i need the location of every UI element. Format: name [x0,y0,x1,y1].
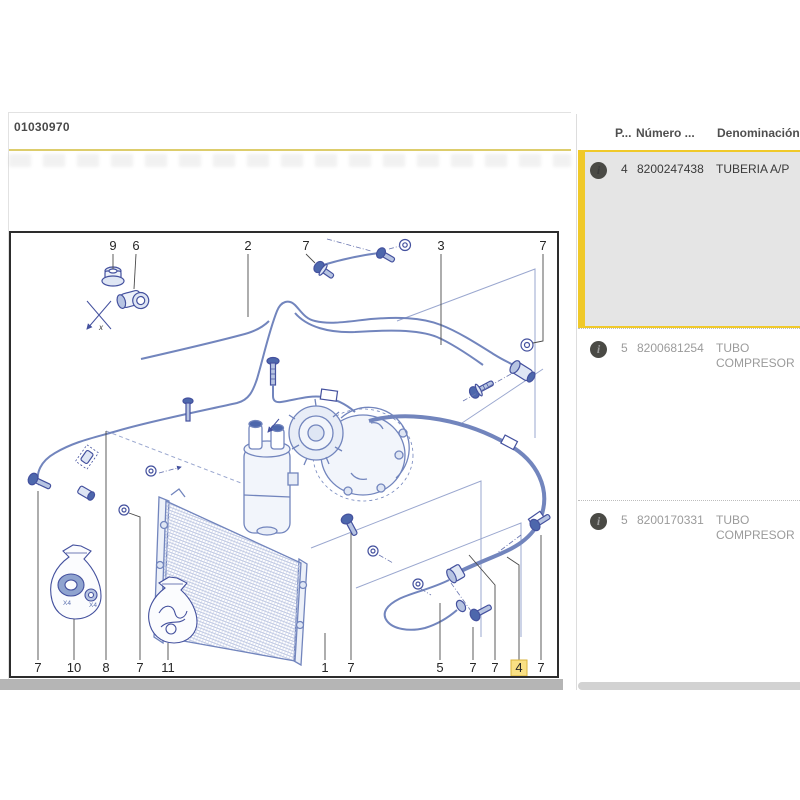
callout-leader [507,557,519,660]
info-icon[interactable]: i [590,341,607,358]
nut-9 [102,267,124,286]
part-row[interactable]: i 5 8200170331 TUBO COMPRESOR [578,500,800,678]
diagram-callout-8-8[interactable]: 8 [102,660,109,675]
diagram-callout-6-1[interactable]: 6 [132,238,139,253]
diagram-callout-7-17[interactable]: 7 [537,660,544,675]
callout-leader [129,513,140,660]
grid-header: P... Número ... Denominación [578,112,800,150]
part-name: TUBERIA A/P [716,162,800,177]
diagram-callout-7-14[interactable]: 7 [469,660,476,675]
info-icon[interactable]: i [590,513,607,530]
part-position: 4 [621,162,628,176]
diagram-label: x [98,323,104,332]
diagram-callout-7-3[interactable]: 7 [302,238,309,253]
yellow-rule [9,149,571,151]
callout-leader [306,254,315,263]
part-number: 8200170331 [637,513,704,527]
part-name: TUBO COMPRESOR [716,513,800,543]
diagram-callout-7-5[interactable]: 7 [539,238,546,253]
column-header-number[interactable]: Número ... [636,126,695,140]
grid-rows: i 4 8200247438 TUBERIA A/P i 5 820068125… [578,150,800,678]
diagram-label: X4 [63,600,71,607]
diagram-callout-7-9[interactable]: 7 [136,660,143,675]
diagram-callout-1-11[interactable]: 1 [321,660,328,675]
column-header-pos[interactable]: P... [615,126,631,140]
callout-leader [134,254,136,289]
diagram-label: X4 [89,602,97,609]
diagram-callout-9-0[interactable]: 9 [109,238,116,253]
part-row[interactable]: i 4 8200247438 TUBERIA A/P [578,150,800,328]
left-horizontal-scrollbar[interactable] [0,679,563,690]
right-horizontal-scrollbar[interactable] [578,682,800,690]
part-number: 8200247438 [637,162,704,176]
exploded-diagram[interactable]: 96273771087111757747xX4X4 [9,231,559,678]
diagram-callout-7-12[interactable]: 7 [347,660,354,675]
info-icon[interactable]: i [590,162,607,179]
part-position: 5 [621,341,628,355]
diagram-callout-5-13[interactable]: 5 [436,660,443,675]
panel-divider [576,114,577,690]
part-number: 8200681254 [637,341,704,355]
tube-end-fitting [463,339,537,401]
watermark-strip [9,154,571,167]
diagram-callout-3-4[interactable]: 3 [437,238,444,253]
diagram-callout-7-15[interactable]: 7 [491,660,498,675]
part-name: TUBO COMPRESOR [716,341,800,371]
illustration-panel: 01030970 [8,112,571,680]
clamp-6 [87,288,151,329]
diagram-callout-7-6[interactable]: 7 [34,660,41,675]
diagram-drawing: 96273771087111757747xX4X4 [11,233,557,676]
parts-grid-panel: P... Número ... Denominación i 4 8200247… [578,112,800,680]
column-header-name[interactable]: Denominación [717,126,800,140]
diagram-callout-4-16[interactable]: 4 [515,660,522,675]
diagram-callout-11-10[interactable]: 11 [161,660,175,675]
part-row[interactable]: i 5 8200681254 TUBO COMPRESOR [578,328,800,500]
parts-catalog-screen: 01030970 [0,0,800,800]
part-position: 5 [621,513,628,527]
top-pipe-assembly [312,239,411,282]
compressor [289,399,413,501]
diagram-callout-10-7[interactable]: 10 [67,660,81,675]
diagram-callout-2-2[interactable]: 2 [244,238,251,253]
plate-code: 01030970 [14,120,70,134]
